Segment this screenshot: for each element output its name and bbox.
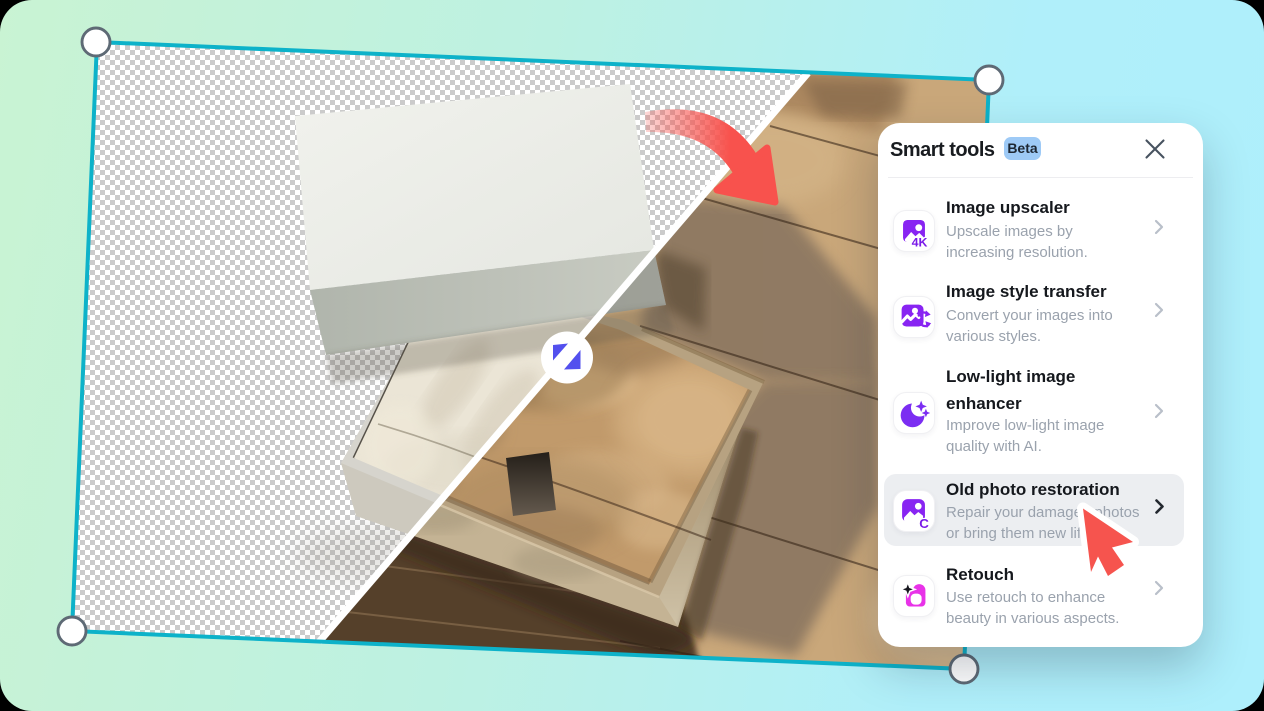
svg-text:C: C bbox=[919, 516, 929, 531]
svg-text:4K: 4K bbox=[912, 236, 928, 250]
